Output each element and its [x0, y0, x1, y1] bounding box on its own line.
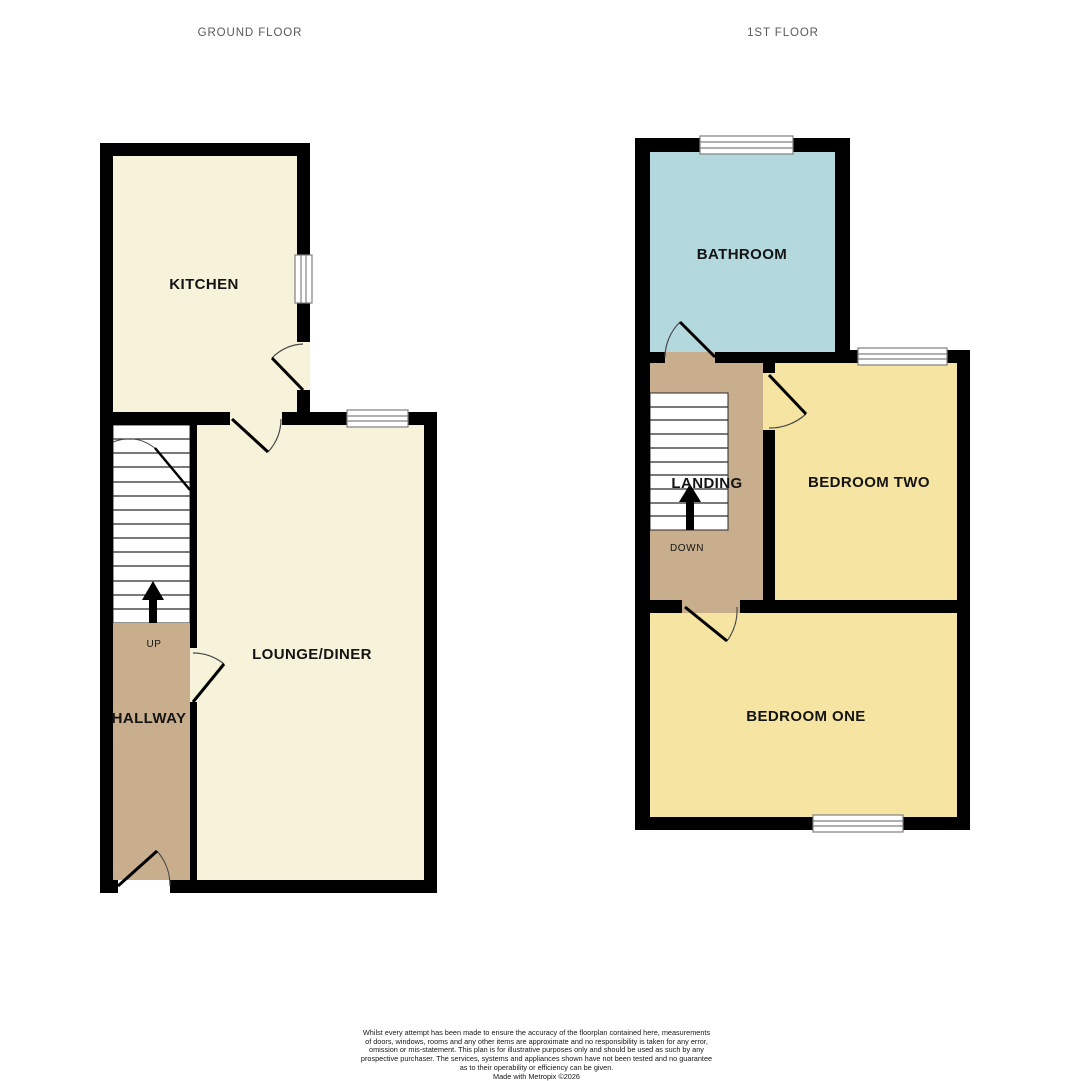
lounge-diner-label: LOUNGE/DINER	[252, 646, 372, 663]
bedroom-two-label: BEDROOM TWO	[808, 474, 930, 491]
bathroom-label: BATHROOM	[697, 246, 787, 263]
bedroom-one-window	[813, 815, 903, 832]
hallway-label: HALLWAY	[112, 710, 187, 727]
bedroom-one-label: BEDROOM ONE	[746, 708, 865, 725]
kitchen-label: KITCHEN	[169, 276, 238, 293]
lounge-window	[347, 410, 408, 427]
kitchen-window	[295, 255, 312, 303]
bedroom-two-window	[858, 348, 947, 365]
floorplan-drawing: KITCHEN LOUNGE/DINER HALLWAY UP	[0, 0, 1073, 1080]
ground-floor-title: GROUND FLOOR	[198, 27, 303, 39]
first-floor-title: 1ST FLOOR	[747, 27, 819, 39]
landing-label: LANDING	[671, 475, 742, 492]
stairs-up-label: UP	[146, 639, 161, 650]
front-door-opening	[118, 880, 170, 893]
ground-floor-plan: KITCHEN LOUNGE/DINER HALLWAY UP	[100, 143, 437, 893]
bathroom-window	[700, 136, 793, 154]
stairs-down-label: DOWN	[670, 543, 704, 554]
hallway-area	[113, 623, 190, 880]
disclaimer-text: Whilst every attempt has been made to en…	[0, 1029, 1073, 1081]
first-floor-plan: BATHROOM BEDROOM TWO LANDING BEDROOM ONE…	[635, 136, 970, 832]
